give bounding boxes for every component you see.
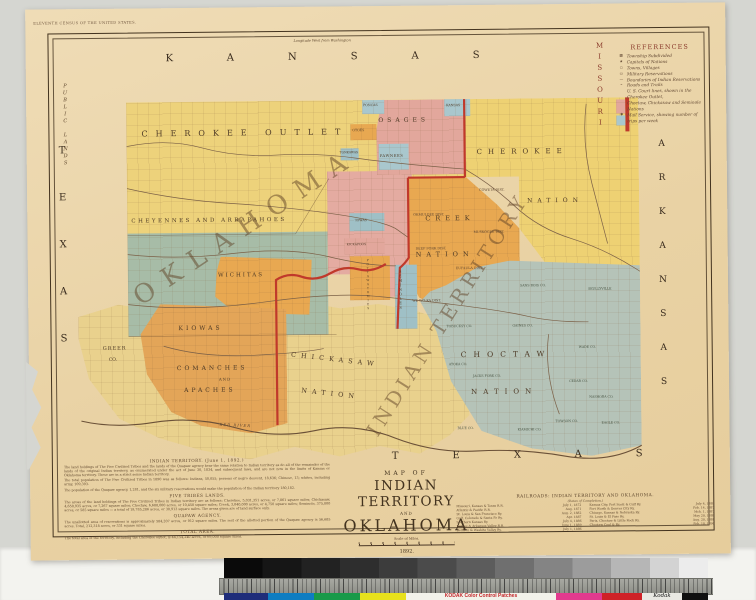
scale-label: Scale of Miles. xyxy=(325,536,489,542)
railroads-left-column: Missouri, Kansas & Texas R.R. July 1, 18… xyxy=(456,504,581,533)
color-patch-yellow xyxy=(360,593,406,600)
state-label-missouri: MISSOURI xyxy=(596,42,604,130)
county-label-tobucksy: TOBUCKSY CO. xyxy=(446,325,472,328)
references-list: ▦ Township Subdivided ★ Capitals of Nati… xyxy=(618,53,703,124)
grayscale-wedge xyxy=(224,558,708,578)
county-label-eagle: EAGLE CO. xyxy=(601,421,620,424)
railroads-right-column: Kansas City, Fort Scott & Gulf Ry. July … xyxy=(589,502,714,531)
label-apaches: APACHES xyxy=(184,387,236,394)
county-label-cedar: CEDAR CO. xyxy=(569,380,588,383)
district-label-coweta: COWETA DIST. xyxy=(479,189,504,193)
color-patch-green xyxy=(314,593,360,600)
label-kickapoos: KICKAPOOS xyxy=(347,243,367,246)
county-label-jacks-fork: JACKS FORK CO. xyxy=(473,375,501,378)
label-greer-co: CO. xyxy=(109,359,117,364)
label-iowas: IOWAS xyxy=(355,219,367,222)
district-label-muskogee: MUSKOGEE DIST. xyxy=(473,231,504,235)
color-patch-black xyxy=(682,593,708,600)
county-label-kiamichi: KIAMICHI CO. xyxy=(518,428,542,431)
notes-block: INDIAN TERRITORY. (June 1, 1892.) The la… xyxy=(64,455,331,542)
county-label-atoka: ATOKA CO. xyxy=(449,363,467,366)
color-patch-blue xyxy=(268,593,314,600)
reference-item: Choctaw, Chickasaw and Seminole Nations xyxy=(618,100,702,113)
color-patch-magenta xyxy=(556,593,602,600)
longitude-note: Longitude West from Washington xyxy=(293,38,350,43)
county-label-sans-bois: SANS BOIS CO. xyxy=(520,284,546,287)
census-imprint: ELEVENTH CENSUS OF THE UNITED STATES. xyxy=(33,21,136,26)
label-cherokee-nation: NATION xyxy=(527,198,583,205)
color-patch-red xyxy=(602,593,642,600)
district-label-deep-fork: DEEP FORK DIST. xyxy=(416,247,447,251)
reference-symbol xyxy=(618,89,625,101)
label-wichitas: WICHITAS xyxy=(218,273,264,279)
region-wichita xyxy=(215,256,313,316)
state-label-texas-left: TEXAS xyxy=(57,145,69,380)
label-tonkawas: TONKAWAS xyxy=(340,151,358,154)
label-kaw: KANSAS xyxy=(446,104,460,107)
title-year: 1892. xyxy=(325,548,489,556)
reference-symbol xyxy=(618,100,625,112)
references-title: REFERENCES xyxy=(618,43,702,52)
county-label-towson: TOWSON CO. xyxy=(555,420,578,423)
county-label-skullyville: SKULLYVILLE xyxy=(588,288,611,291)
map-sheet: ELEVENTH CENSUS OF THE UNITED STATES. Lo… xyxy=(25,2,731,560)
ruler-ticks xyxy=(219,579,713,594)
label-seminoles: SEMINOLES xyxy=(398,270,402,311)
railroad-row: Choctaw Coal & Ry. Feb. 10, 1890 xyxy=(590,522,715,527)
reference-label: U. S. Court lines, shown in the Cherokee… xyxy=(627,88,702,101)
railroad-date: Feb. 10, 1890 xyxy=(693,522,714,526)
paper-tear xyxy=(26,361,47,469)
notes-paragraph: The unallotted area of reservations is a… xyxy=(64,517,330,528)
reference-item: ✱ Mail Service, showing number of trips … xyxy=(618,111,702,124)
railroad-name: Denison & Washita Valley Ry. xyxy=(457,528,502,532)
county-label-blue: BLUE CO. xyxy=(458,427,474,430)
references-box: REFERENCES ▦ Township Subdivided ★ Capit… xyxy=(618,43,703,124)
kodak-patches-title: KODAK Color Control Patches xyxy=(406,593,556,600)
color-patches: KODAK Color Control Patches Kodak xyxy=(224,593,708,600)
label-comanches: COMANCHES xyxy=(177,365,248,372)
scale-bar xyxy=(359,541,455,546)
label-cherokee: CHEROKEE xyxy=(477,148,568,156)
notes-paragraph: The areas of the land holdings of The Fi… xyxy=(64,497,330,512)
railroad-date: July 1, 1886 xyxy=(563,528,582,532)
region-kaw xyxy=(444,99,470,116)
kodak-brand: Kodak xyxy=(642,593,682,600)
railroad-name: Choctaw Coal & Ry. xyxy=(590,523,621,527)
district-label-eufaula: EUFAULA DIST. xyxy=(456,267,483,271)
label-kiowas: KIOWAS xyxy=(178,326,222,332)
label-and: AND xyxy=(219,378,231,382)
label-poncas: PONCAS xyxy=(363,104,378,107)
label-osages: OSAGES xyxy=(378,117,429,124)
state-label-arkansas: ARKANSAS xyxy=(657,139,669,411)
county-label-nashoba: NASHOBA CO. xyxy=(589,396,613,399)
label-greer: GREER xyxy=(103,347,127,352)
photographed-map: ELEVENTH CENSUS OF THE UNITED STATES. Lo… xyxy=(0,0,756,600)
reference-label: Mail Service, showing number of trips pe… xyxy=(627,111,702,124)
reference-label: Choctaw, Chickasaw and Seminole Nations xyxy=(627,100,702,113)
color-patch-navy xyxy=(224,593,268,600)
label-creek-nation: NATION xyxy=(416,251,474,258)
county-label-gaines: GAINES CO. xyxy=(512,324,532,327)
label-choctaw-nation: NATION xyxy=(471,388,537,396)
district-label-okmulgee: OKMULGEE DIST. xyxy=(413,213,444,217)
railroads-table: RAILROADS: INDIAN TERRITORY AND OKLAHOMA… xyxy=(456,492,714,532)
reference-symbol: ✱ xyxy=(618,112,625,124)
label-pottawatomies: POTTAWATOMIES xyxy=(366,258,369,310)
label-otoes: OTOES xyxy=(352,129,364,132)
county-label-wade: WADE CO. xyxy=(579,346,596,349)
district-label-wewoka: WE-WO-KA DIST. xyxy=(412,299,441,303)
label-public-lands: PUBLIC LANDS xyxy=(62,83,68,167)
reference-item: U. S. Court lines, shown in the Cherokee… xyxy=(618,88,702,101)
label-pawnees: PAWNEES xyxy=(380,154,404,158)
label-choctaw: CHOCTAW xyxy=(461,350,552,358)
